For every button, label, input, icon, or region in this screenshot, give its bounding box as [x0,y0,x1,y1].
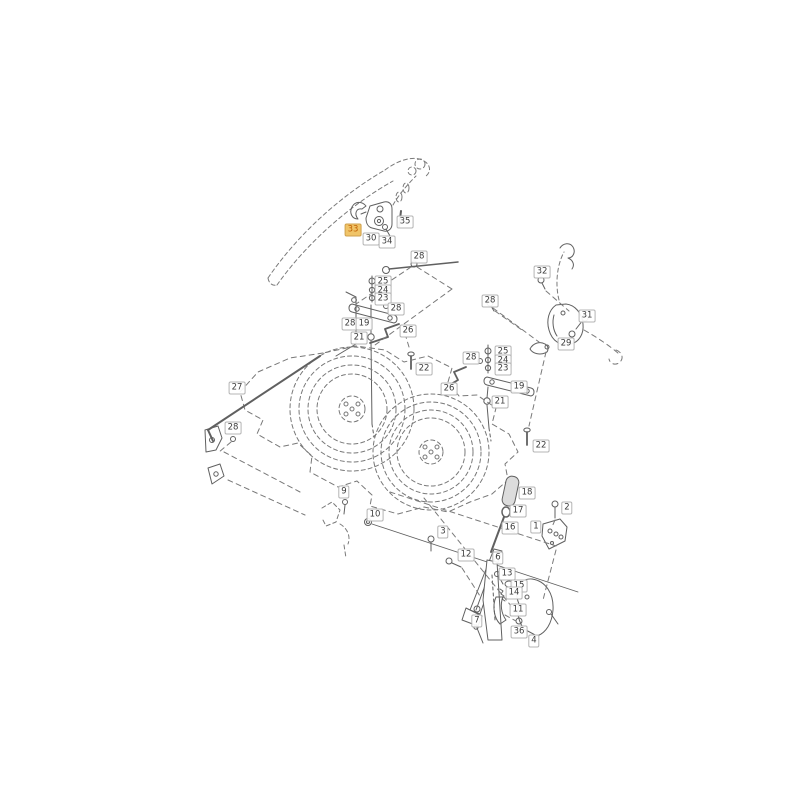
part-label-26[interactable]: 26 [400,325,417,338]
part-label-22[interactable]: 22 [416,363,433,376]
part-label-2[interactable]: 2 [561,502,572,515]
part-label-26[interactable]: 26 [441,383,458,396]
part-label-16[interactable]: 16 [502,522,519,535]
part-label-19[interactable]: 19 [356,318,373,331]
part-label-32[interactable]: 32 [534,266,551,279]
part-label-18[interactable]: 18 [519,487,536,500]
part-label-30[interactable]: 30 [363,233,380,246]
part-label-28[interactable]: 28 [225,422,242,435]
part-label-14[interactable]: 14 [506,587,523,600]
part-label-10[interactable]: 10 [367,509,384,522]
part-label-7[interactable]: 7 [471,615,482,628]
part-label-1[interactable]: 1 [530,521,541,534]
part-label-17[interactable]: 17 [510,505,527,518]
part-label-21[interactable]: 21 [492,396,509,409]
part-labels-layer: 3330343528252423282819262122272832283129… [0,0,800,800]
part-label-19[interactable]: 19 [511,381,528,394]
part-label-28[interactable]: 28 [482,295,499,308]
part-label-31[interactable]: 31 [579,310,596,323]
part-label-27[interactable]: 27 [229,382,246,395]
part-label-34[interactable]: 34 [379,236,396,249]
part-label-4[interactable]: 4 [528,635,539,648]
part-label-6[interactable]: 6 [492,552,503,565]
part-label-23[interactable]: 23 [495,363,512,376]
part-label-33-highlighted[interactable]: 33 [345,224,362,237]
part-label-21[interactable]: 21 [351,332,368,345]
part-label-3[interactable]: 3 [437,526,448,539]
part-label-22[interactable]: 22 [533,440,550,453]
part-label-35[interactable]: 35 [397,216,414,229]
part-label-11[interactable]: 11 [510,604,527,617]
part-label-12[interactable]: 12 [458,549,475,562]
parts-diagram-page: 3330343528252423282819262122272832283129… [0,0,800,800]
part-label-28[interactable]: 28 [463,352,480,365]
part-label-28[interactable]: 28 [388,303,405,316]
part-label-28[interactable]: 28 [411,251,428,264]
part-label-9[interactable]: 9 [338,486,349,499]
part-label-36[interactable]: 36 [511,626,528,639]
part-label-29[interactable]: 29 [558,338,575,351]
